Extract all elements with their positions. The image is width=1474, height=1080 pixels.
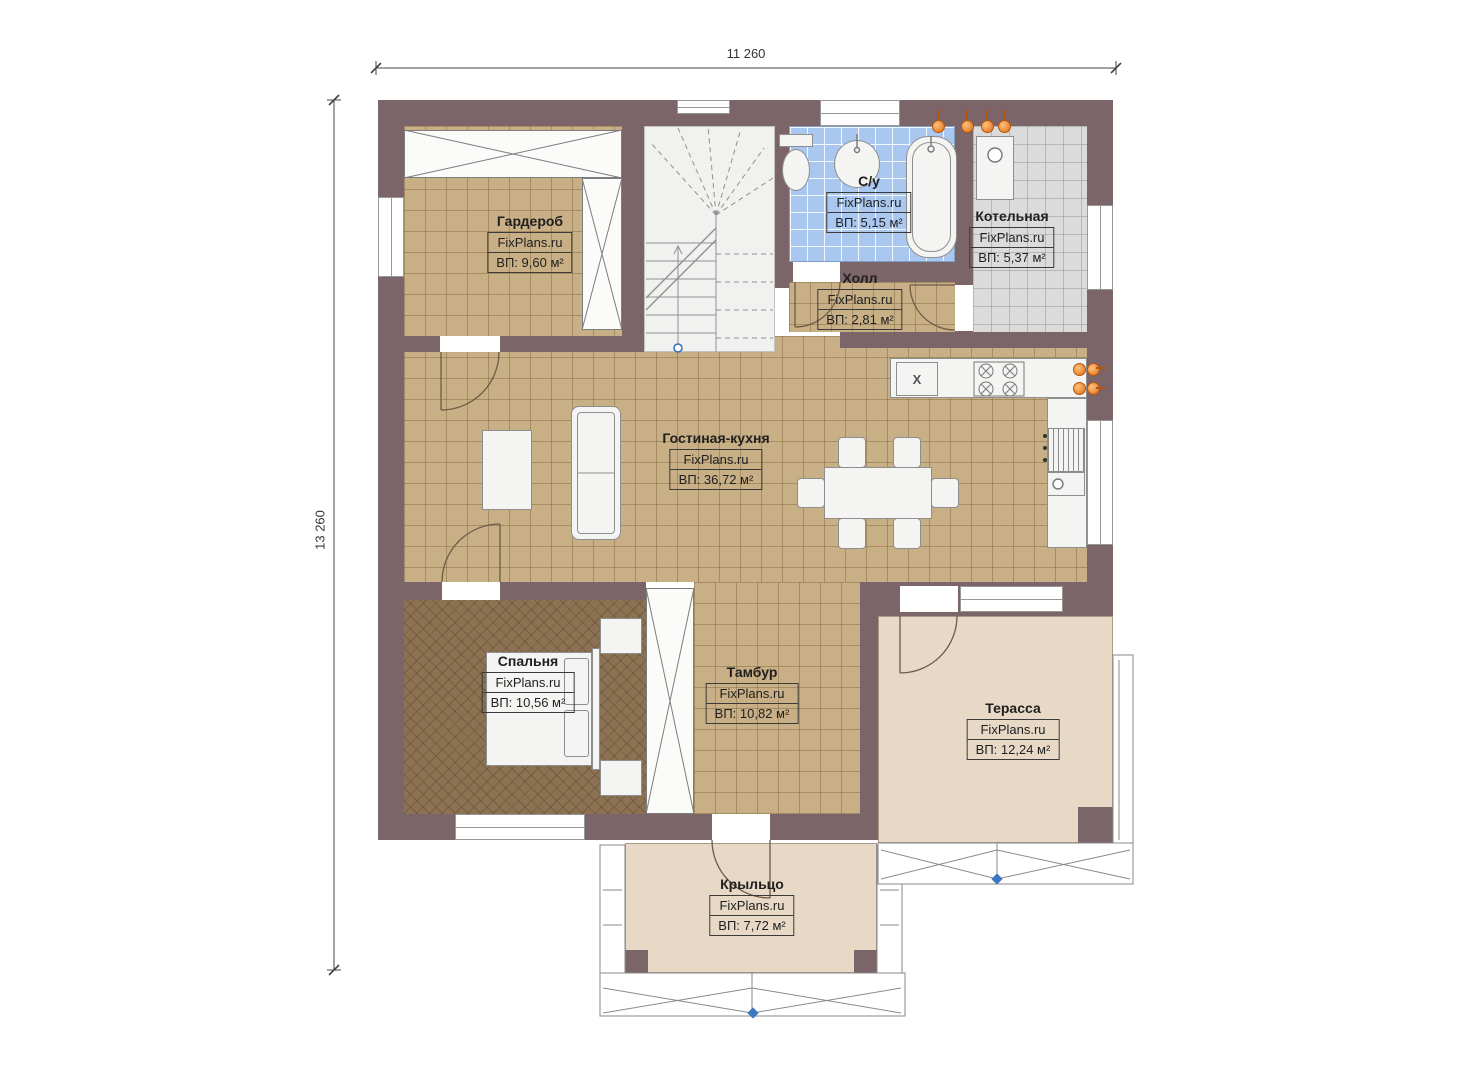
nightstand [600, 618, 642, 654]
bathtub-inner [912, 142, 951, 252]
fridge-lower [1047, 472, 1085, 496]
watermark: FixPlans.ru [710, 896, 793, 915]
watermark: FixPlans.ru [488, 233, 571, 252]
room-label-porch: Крыльцо FixPlans.ru ВП: 7,72 м² [709, 876, 794, 936]
kitchen-sink: X [896, 362, 938, 396]
wardrobe-door-opening [440, 336, 500, 352]
bedroom-door-opening [442, 582, 500, 600]
room-label-boiler: Котельная FixPlans.ru ВП: 5,37 м² [969, 208, 1054, 268]
room-info-box: FixPlans.ru ВП: 10,82 м² [706, 683, 799, 724]
wall-bottom [378, 814, 878, 840]
radiator-icon [998, 120, 1011, 133]
radiator-icon [1073, 382, 1086, 395]
staircase-area [644, 126, 775, 352]
radiator-icon [932, 120, 945, 133]
watermark: FixPlans.ru [968, 720, 1059, 739]
room-label-wardrobe: Гардероб FixPlans.ru ВП: 9,60 м² [487, 213, 572, 273]
boiler-unit [976, 136, 1014, 200]
dimension-width-label: 11 260 [727, 46, 766, 61]
window-living-terrace [960, 586, 1063, 612]
radiator-icon [961, 120, 974, 133]
wall-tambour-terrace [860, 616, 878, 840]
room-area: ВП: 5,15 м² [827, 212, 910, 232]
room-name: Крыльцо [709, 876, 794, 892]
radiator-icon [981, 120, 994, 133]
porch-pillar-right [854, 950, 877, 973]
dining-table [824, 467, 932, 519]
room-area: ВП: 7,72 м² [710, 915, 793, 935]
entry-marker-icon [747, 1007, 758, 1018]
tambour-closet [646, 588, 694, 814]
bed-pillow [564, 710, 589, 757]
room-info-box: FixPlans.ru ВП: 9,60 м² [487, 232, 572, 273]
dining-chair [797, 478, 825, 508]
window-left-wardrobe [378, 197, 404, 277]
watermark: FixPlans.ru [827, 193, 910, 212]
room-area: ВП: 10,82 м² [707, 703, 798, 723]
room-info-box: FixPlans.ru ВП: 5,15 м² [826, 192, 911, 233]
toilet-tank [779, 134, 813, 147]
room-label-terrace: Терасса FixPlans.ru ВП: 12,24 м² [967, 700, 1060, 760]
wall-above-bedroom [404, 582, 646, 600]
fridge-grille [1047, 428, 1085, 472]
dining-chair [893, 437, 921, 468]
room-area: ВП: 2,81 м² [818, 309, 901, 329]
wardrobe-closet-right [582, 178, 622, 330]
radiator-icon [1087, 382, 1100, 395]
room-info-box: FixPlans.ru ВП: 10,56 м² [482, 672, 575, 713]
room-name: Холл [817, 270, 902, 286]
wall-below-boiler [840, 332, 1087, 348]
room-label-living-kitchen: Гостиная-кухня FixPlans.ru ВП: 36,72 м² [662, 430, 769, 490]
dining-chair [838, 518, 866, 549]
room-info-box: FixPlans.ru ВП: 12,24 м² [967, 719, 1060, 760]
window-top-bathroom [820, 100, 900, 126]
toilet-bowl [782, 149, 810, 191]
room-name: Спальня [482, 653, 575, 669]
boiler-door-opening [955, 285, 973, 331]
porch-door-opening [712, 814, 770, 840]
room-label-hall: Холл FixPlans.ru ВП: 2,81 м² [817, 270, 902, 330]
dining-chair [893, 518, 921, 549]
coffee-table [482, 430, 532, 510]
room-info-box: FixPlans.ru ВП: 2,81 м² [817, 289, 902, 330]
window-right-kitchen [1087, 420, 1113, 545]
watermark: FixPlans.ru [707, 684, 798, 703]
room-name: С/у [826, 173, 911, 189]
radiator-icon [1087, 363, 1100, 376]
room-area: ВП: 36,72 м² [671, 469, 762, 489]
dining-chair [931, 478, 959, 508]
room-area: ВП: 10,56 м² [483, 692, 574, 712]
room-area: ВП: 12,24 м² [968, 739, 1059, 759]
room-label-bathroom: С/у FixPlans.ru ВП: 5,15 м² [826, 173, 911, 233]
window-right-boiler [1087, 205, 1113, 290]
nightstand [600, 760, 642, 796]
room-label-bedroom: Спальня FixPlans.ru ВП: 10,56 м² [482, 653, 575, 713]
watermark: FixPlans.ru [671, 450, 762, 469]
radiator-icon [1073, 363, 1086, 376]
watermark: FixPlans.ru [818, 290, 901, 309]
stairs-hall-opening [775, 288, 789, 332]
room-info-box: FixPlans.ru ВП: 5,37 м² [969, 227, 1054, 268]
terrace-pillar [1078, 807, 1113, 843]
sofa-seat [577, 412, 615, 534]
room-name: Котельная [969, 208, 1054, 224]
room-name: Гардероб [487, 213, 572, 229]
porch-pillar-left [625, 950, 648, 973]
room-name: Гостиная-кухня [662, 430, 769, 446]
wardrobe-closet-top [404, 130, 622, 178]
floor-plan: 11 260 13 260 [0, 0, 1474, 1080]
window-bedroom [455, 814, 585, 840]
bed-headboard [592, 648, 600, 770]
watermark: FixPlans.ru [970, 228, 1053, 247]
window-top-stairs [677, 100, 730, 114]
dimension-height-label: 13 260 [313, 510, 328, 550]
room-label-tambour: Тамбур FixPlans.ru ВП: 10,82 м² [706, 664, 799, 724]
room-area: ВП: 9,60 м² [488, 252, 571, 272]
room-info-box: FixPlans.ru ВП: 36,72 м² [670, 449, 763, 490]
watermark: FixPlans.ru [483, 673, 574, 692]
terrace-door-opening [900, 586, 958, 612]
room-name: Тамбур [706, 664, 799, 680]
entry-marker-icon [991, 873, 1002, 884]
wall-wardrobe-stairs [622, 126, 644, 352]
dining-chair [838, 437, 866, 468]
room-info-box: FixPlans.ru ВП: 7,72 м² [709, 895, 794, 936]
room-name: Терасса [967, 700, 1060, 716]
kitchen-sink-symbol: X [913, 372, 922, 387]
room-area: ВП: 5,37 м² [970, 247, 1053, 267]
